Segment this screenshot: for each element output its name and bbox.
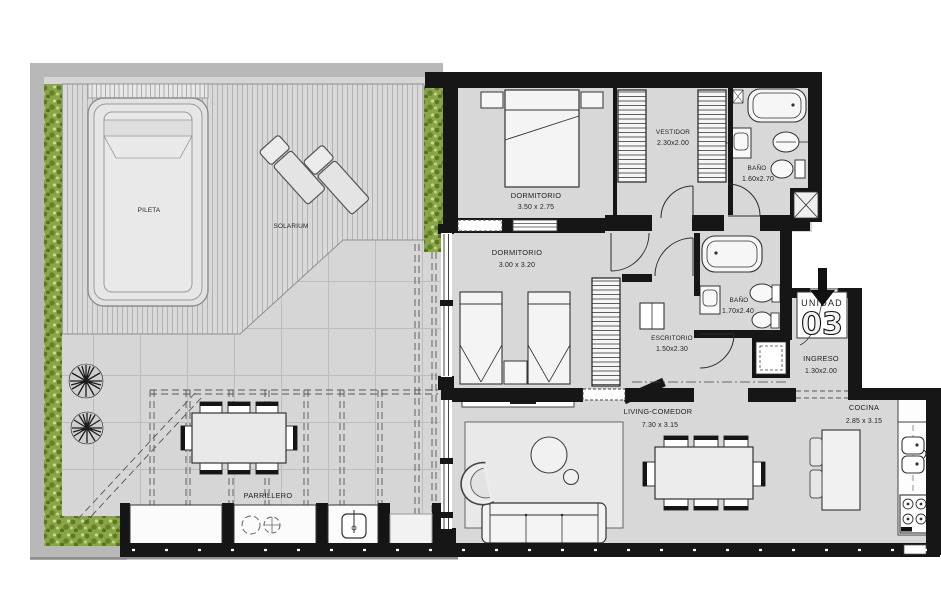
ingreso-dims: 1.30x2.00: [805, 368, 837, 375]
dining-set: [643, 436, 765, 510]
toilet-2-symbol: [750, 284, 780, 302]
glass-wall-dormitorio-2: [440, 233, 453, 377]
window-south-kitchen: [904, 545, 926, 554]
dining-table: [655, 447, 753, 499]
nightstand-between-beds: [504, 361, 527, 384]
bidet-2-symbol: [752, 312, 779, 328]
bathtub-2-symbol: [702, 236, 762, 272]
single-bed-1: [460, 292, 502, 384]
sofa-symbol: [482, 503, 606, 543]
pool-step: [104, 120, 192, 136]
nightstand-left: [481, 92, 503, 108]
pool: PILETA: [88, 84, 208, 306]
terrace: PILETA SOLARIUM: [30, 63, 458, 560]
sink-2-symbol: [700, 286, 720, 314]
stool-2: [810, 470, 822, 498]
parrillero-counter-left: [130, 505, 222, 545]
planter-bottom: [44, 516, 125, 546]
window-divider-1: [458, 220, 502, 231]
floorplan-drawing: PILETA SOLARIUM: [0, 0, 941, 599]
living-comedor-dims: 7.30 x 3.15: [642, 422, 678, 429]
dormitorio-principal-label: DORMITORIO: [511, 191, 561, 200]
coffee-table-large: [531, 437, 567, 473]
stove-symbol: [900, 495, 928, 533]
shaft-box: [790, 188, 822, 222]
escritorio-dims: 1.50x2.30: [656, 346, 688, 353]
dormitorio-2-label: DORMITORIO: [492, 248, 542, 257]
bano-1-dims: 1.60x2.70: [742, 176, 774, 183]
coffee-table-small: [564, 470, 579, 485]
single-bed-2: [528, 292, 570, 384]
window-divider-3: [583, 389, 625, 400]
entry-closet: [752, 338, 790, 378]
stool-1: [810, 438, 822, 466]
glass-wall-living: [440, 400, 453, 529]
bano-1-label: BAÑO: [748, 163, 767, 172]
palm-tree-1: [69, 364, 103, 398]
window-divider-2: [513, 220, 557, 231]
pileta-label: PILETA: [138, 207, 161, 214]
bano-2-dims: 1.70x2.40: [722, 308, 754, 315]
bathtub-symbol: [748, 89, 806, 122]
ingreso-label: INGRESO: [803, 354, 839, 363]
bano-2-label: BAÑO: [730, 295, 749, 304]
dormitorio-principal-dims: 3.50 x 2.75: [518, 204, 554, 211]
cocina-label: COCINA: [849, 403, 879, 412]
palm-tree-2: [71, 412, 103, 444]
vestidor-dims: 2.30x2.00: [657, 140, 689, 147]
outdoor-dining-set: [181, 402, 297, 474]
double-bed-symbol: [505, 90, 579, 187]
solarium-label: SOLARIUM: [274, 223, 309, 230]
cocina-dims: 2.85 x 3.15: [846, 418, 882, 425]
toilet-symbol: [771, 160, 805, 178]
wardrobe-left: [618, 90, 646, 182]
wardrobe-dormitorio-2: [592, 278, 620, 386]
vestidor-label: VESTIDOR: [656, 129, 690, 136]
dormitorio-2-dims: 3.00 x 3.20: [499, 262, 535, 269]
floorplan-page: PILETA SOLARIUM: [0, 0, 941, 599]
kitchen-island: [822, 430, 860, 510]
nightstand-right: [581, 92, 603, 108]
escritorio-label: ESCRITORIO: [651, 335, 693, 342]
hedge-left: [44, 84, 62, 546]
parrillero-label: PARRILLERO: [244, 491, 293, 500]
unit-number: 03: [801, 307, 843, 342]
outdoor-table: [192, 413, 286, 463]
living-comedor-label: LIVING-COMEDOR: [624, 407, 693, 416]
wardrobe-right: [698, 90, 726, 182]
pass-through-counter: [390, 514, 432, 545]
